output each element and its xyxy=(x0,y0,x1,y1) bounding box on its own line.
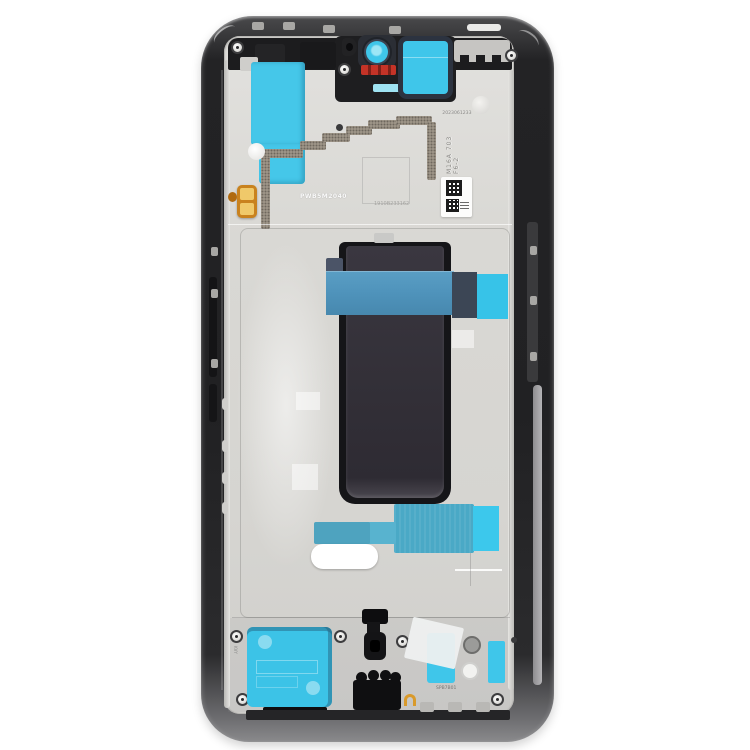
cyan-tape-end xyxy=(473,506,499,551)
alignment-hole xyxy=(248,143,265,160)
emi-shield-trace xyxy=(300,141,326,150)
antenna-tab xyxy=(530,352,537,361)
top-slot xyxy=(467,24,501,31)
bracket-notch xyxy=(460,55,469,63)
antenna-tab xyxy=(283,22,295,30)
camera-lens-glint xyxy=(371,45,382,56)
red-adhesive-strip xyxy=(361,65,396,75)
seam-line xyxy=(228,224,512,225)
adhesive-patch-top-right xyxy=(403,41,448,94)
locator-dot xyxy=(511,637,517,643)
screw xyxy=(505,49,518,62)
gold-contact xyxy=(404,694,416,706)
seam-line xyxy=(470,552,471,586)
antenna-tab xyxy=(211,289,218,298)
mic-hole xyxy=(370,640,380,652)
frame-highlight xyxy=(221,70,223,690)
side-button-slot xyxy=(209,384,217,422)
castellated-tab xyxy=(420,702,434,712)
metal-clip xyxy=(374,233,394,243)
screw xyxy=(491,693,504,706)
stamp-code-text: M16A 703 F6-2 xyxy=(446,128,470,174)
coil-spring xyxy=(228,192,237,202)
top-component xyxy=(255,44,285,64)
rail-bump xyxy=(222,502,228,514)
patch-etch-line xyxy=(256,676,298,688)
qr-label-microtext xyxy=(460,200,469,209)
etched-square xyxy=(452,330,474,348)
etched-square xyxy=(292,464,318,490)
patch-etch-line xyxy=(256,660,318,674)
alignment-hole xyxy=(472,96,490,114)
emi-shield-trace xyxy=(427,122,436,180)
tape-shade xyxy=(314,522,370,544)
screw xyxy=(334,630,347,643)
antenna-tab xyxy=(211,247,218,256)
side-rail-light xyxy=(533,385,542,685)
etched-square xyxy=(362,157,410,204)
screw xyxy=(338,63,351,76)
bracket-notch xyxy=(492,55,501,63)
antenna-tab xyxy=(252,22,264,30)
castellated-tab xyxy=(476,702,490,712)
castellated-tab xyxy=(448,702,462,712)
teal-tape-patch xyxy=(394,504,474,553)
camera-grommet-hole xyxy=(346,43,353,51)
rail-bump xyxy=(222,398,228,410)
speaker-contact-comb xyxy=(353,680,401,710)
qr-code xyxy=(446,180,462,196)
board-code-text: PWB5M2040 xyxy=(300,193,347,200)
gold-pad xyxy=(240,188,254,200)
patch-hole-mark xyxy=(306,681,320,695)
alignment-hole xyxy=(461,662,479,680)
qr-code xyxy=(446,199,459,212)
bracket-notch xyxy=(476,55,485,63)
antenna-tab xyxy=(389,26,401,34)
antenna-tab xyxy=(530,246,537,255)
serial-code-text: 1910B233162 xyxy=(374,202,409,207)
tape-crease xyxy=(403,57,448,58)
antenna-tab xyxy=(530,296,537,305)
seam-line xyxy=(455,569,502,571)
etched-square xyxy=(296,392,320,410)
side-code-text: KVY xyxy=(233,646,238,654)
plate-left-rail xyxy=(224,60,230,708)
adhesive-patch-bottom-right-b xyxy=(488,641,505,683)
batch-code-text: 2023061233 xyxy=(442,111,471,116)
antenna-tab xyxy=(323,25,335,33)
locator-dot xyxy=(336,124,343,131)
tape-end-cyan xyxy=(477,274,508,319)
rail-bump xyxy=(222,472,228,484)
screw xyxy=(231,41,244,54)
emi-shield-trace xyxy=(261,149,303,158)
blue-tape-strip xyxy=(326,271,454,315)
white-foam-pad xyxy=(311,544,378,569)
tape-end-navy xyxy=(452,272,477,318)
emi-shield-trace xyxy=(261,157,270,229)
top-component xyxy=(300,42,336,69)
bottom-code-text: SPB7B01 xyxy=(436,686,456,691)
antenna-tab xyxy=(211,359,218,368)
rail-bump xyxy=(222,440,228,452)
open-hole xyxy=(463,636,481,654)
gold-pad xyxy=(240,203,254,215)
screw xyxy=(230,630,243,643)
bottom-inner-band xyxy=(246,710,510,720)
adhesive-patch-top-left xyxy=(251,62,305,145)
product-photo: 2023061233 M16A 703 F6-2 PWB5M2040 1910B… xyxy=(0,0,750,750)
patch-hole-mark xyxy=(258,635,272,649)
